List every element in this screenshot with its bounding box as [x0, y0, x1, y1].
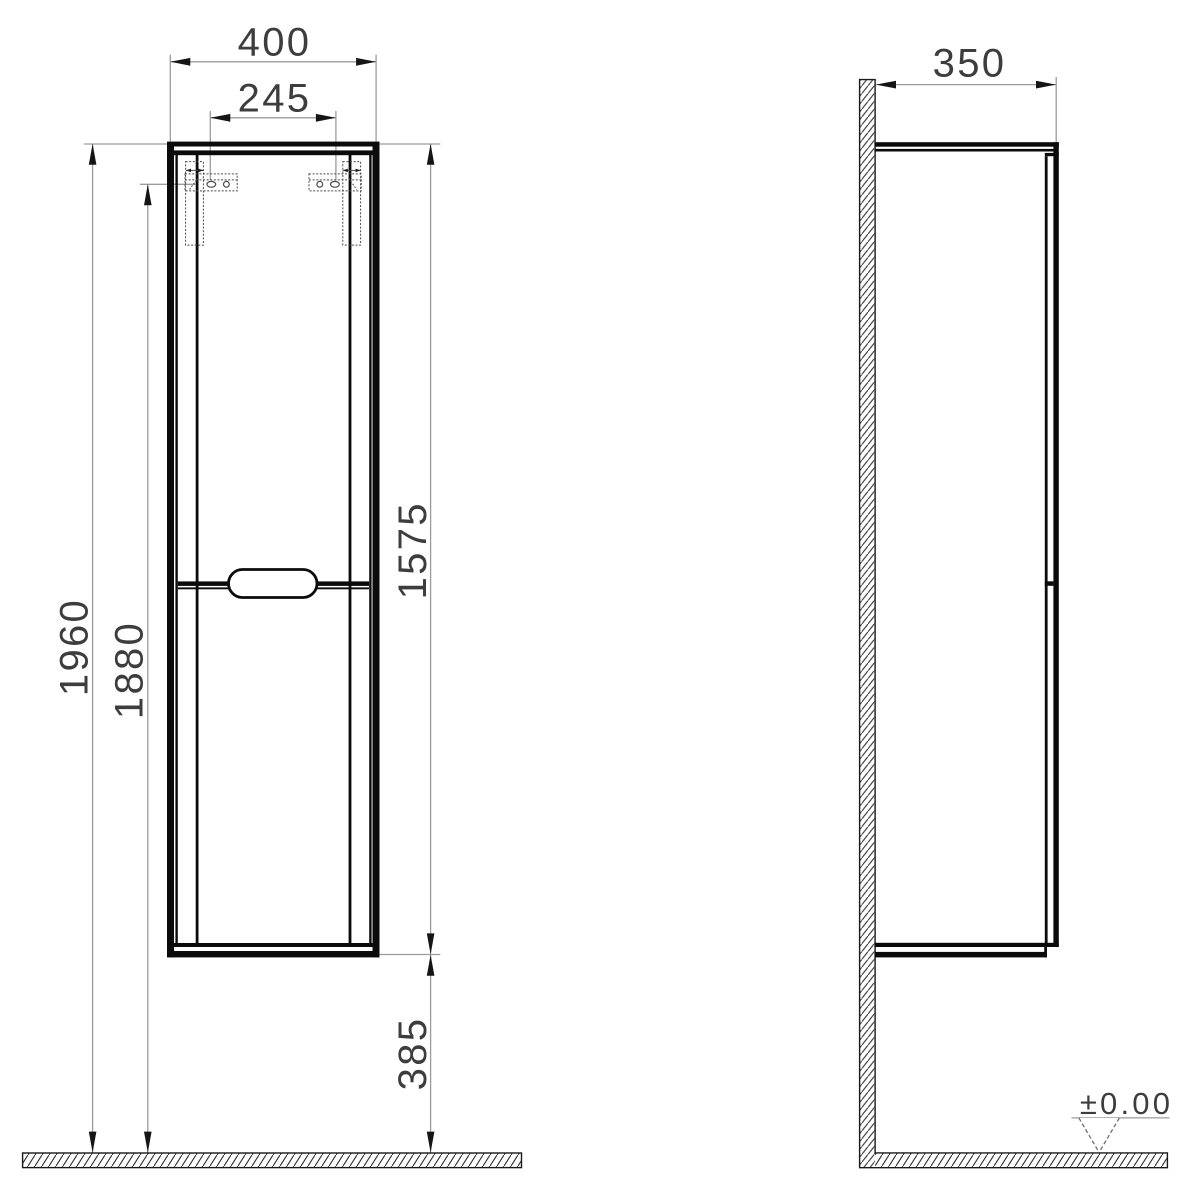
svg-text:1960: 1960: [53, 598, 97, 696]
svg-text:±0.00: ±0.00: [1080, 1086, 1173, 1121]
svg-text:385: 385: [391, 1017, 435, 1091]
svg-text:1575: 1575: [391, 501, 435, 599]
svg-text:400: 400: [238, 21, 312, 65]
svg-text:1880: 1880: [108, 621, 152, 719]
svg-text:245: 245: [238, 77, 312, 121]
svg-text:350: 350: [933, 42, 1007, 86]
